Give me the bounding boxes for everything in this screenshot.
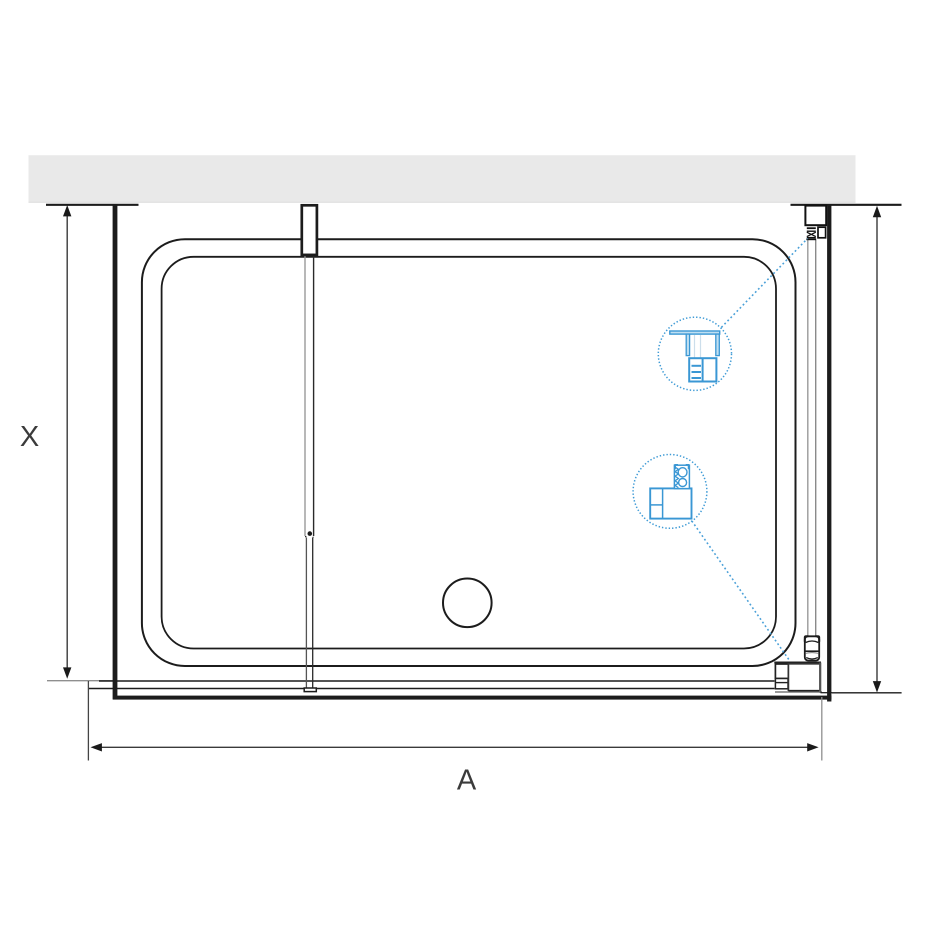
svg-text:X: X (20, 421, 39, 453)
svg-text:A: A (457, 764, 477, 796)
